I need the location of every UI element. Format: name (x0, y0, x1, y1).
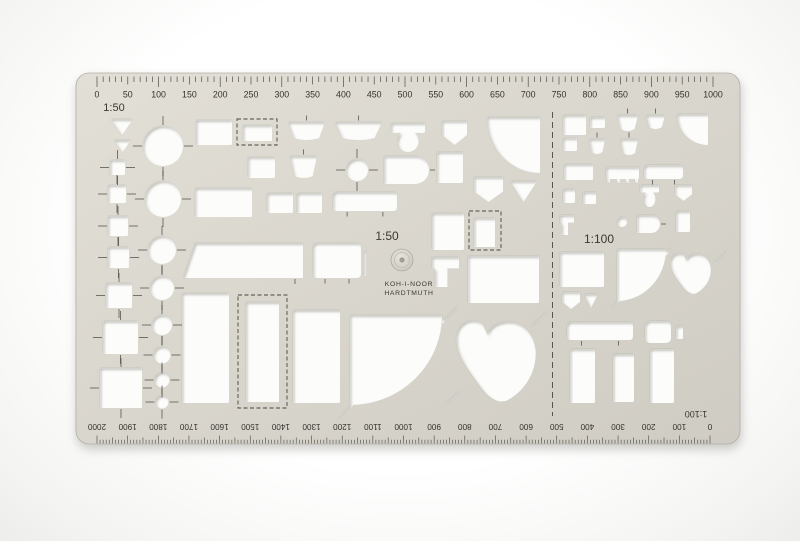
top-ruler-number: 650 (490, 90, 505, 100)
cutout-square-marker-6 (103, 321, 138, 354)
scale-label-center: 1:50 (375, 229, 399, 243)
cutout-h-bed-double (560, 252, 604, 287)
cutout-washbasin-3 (290, 156, 317, 178)
top-ruler-number: 1000 (703, 90, 723, 100)
top-ruler-number: 700 (521, 90, 536, 100)
top-ruler-number: 100 (151, 90, 166, 100)
cutout-h-sofa (567, 322, 633, 340)
cutout-square-marker-7 (100, 368, 142, 408)
bottom-ruler-number: 1100 (364, 422, 382, 431)
cutout-circle-6 (154, 347, 171, 364)
top-ruler-number: 500 (398, 90, 413, 100)
cutout-circle-1 (143, 126, 183, 166)
cutout-h-chair-tab (676, 326, 683, 339)
cutout-h-cab-4 (583, 192, 596, 204)
bottom-ruler-number: 100 (672, 422, 686, 431)
cutout-circle-2 (145, 181, 181, 217)
bottom-ruler-number: 700 (488, 422, 502, 431)
scale-label-top-left: 1:50 (103, 102, 124, 114)
cutout-desk (195, 188, 252, 217)
top-ruler-number: 400 (336, 90, 351, 100)
cutout-h-cab-3 (563, 189, 575, 203)
template-photo: 0501001502002503003504004505005506006507… (0, 0, 800, 541)
cutout-dashed-square (474, 218, 495, 247)
bottom-ruler-number: 1600 (210, 422, 229, 431)
top-ruler-number: 900 (644, 90, 659, 100)
cutout-square-marker-4 (108, 247, 129, 268)
bottom-ruler-number: 1300 (302, 422, 321, 431)
bottom-ruler-number: 800 (458, 422, 472, 431)
scale-label-bottom-flipped: 1:100 (685, 409, 708, 419)
cutout-night-table-1 (267, 193, 293, 213)
cutout-h-bed-2 (613, 354, 634, 402)
cutout-square-marker-3 (108, 216, 128, 236)
cutout-bed-single (182, 293, 229, 403)
top-ruler-number: 200 (213, 90, 228, 100)
cutout-bathtub-2 (313, 243, 361, 278)
bottom-ruler-number: 2000 (87, 422, 106, 431)
cutout-wardrobe (196, 120, 232, 145)
bottom-ruler-number: 1900 (118, 422, 137, 431)
bottom-ruler-number: 1800 (149, 422, 168, 431)
cutout-fridge (432, 213, 464, 250)
bottom-ruler-number: 900 (427, 422, 441, 431)
cutout-h-bed-1 (570, 349, 595, 403)
cutout-cabinet (248, 157, 275, 178)
bottom-ruler-number: 500 (549, 422, 563, 431)
cutout-h-tub-round (637, 215, 660, 233)
bottom-ruler-number: 1400 (271, 422, 290, 431)
top-ruler-number: 800 (582, 90, 597, 100)
top-ruler-number: 250 (244, 90, 259, 100)
brand-name: KOH-I-NOOR (385, 281, 434, 288)
rivet (391, 249, 413, 271)
cutout-bed-dashed (246, 302, 279, 402)
top-ruler-number: 150 (182, 90, 197, 100)
cutout-h-wardrobe (563, 115, 586, 135)
top-ruler-number: 600 (459, 90, 474, 100)
cutout-square-marker-1 (110, 160, 125, 175)
top-ruler-number: 0 (95, 90, 100, 100)
top-ruler-number: 850 (613, 90, 628, 100)
cutout-h-armchair (645, 321, 671, 343)
top-ruler-number: 950 (675, 90, 690, 100)
cutout-circle-7 (155, 373, 170, 388)
bottom-ruler-number: 400 (580, 422, 594, 431)
top-ruler-number: 50 (123, 90, 133, 100)
cutout-bathtub-round-end (384, 156, 429, 184)
cutout-sofa (183, 243, 303, 278)
cutout-square-marker-2 (108, 185, 126, 203)
cutout-night-table-2 (297, 193, 322, 213)
bottom-ruler-number: 200 (641, 422, 655, 431)
product-photo: 0501001502002503003504004505005506006507… (0, 0, 800, 541)
cutout-h-desk (564, 164, 593, 180)
cutout-bed-single-2 (293, 310, 340, 403)
bottom-ruler-number: 1000 (394, 422, 413, 431)
cutout-square-marker-5 (106, 283, 132, 308)
stencil-body-group: 0501001502002503003504004505005506006507… (76, 73, 740, 444)
scale-label-right: 1:100 (584, 232, 614, 246)
cutout-h-stool (617, 217, 627, 227)
brand-name-line2: HARDTMUTH (384, 290, 433, 297)
cutout-h-bathtub (644, 165, 683, 179)
cutout-circle-4 (150, 276, 174, 300)
top-ruler-number: 350 (305, 90, 320, 100)
bottom-ruler-number: 1200 (333, 422, 352, 431)
cutout-circle-3 (148, 236, 176, 264)
bottom-ruler-number: 1500 (241, 422, 260, 431)
bottom-ruler-number: 300 (611, 422, 625, 431)
bottom-ruler-number: 1700 (179, 422, 198, 431)
cutout-dashed-box (243, 125, 272, 141)
cutout-bathtub (333, 192, 397, 211)
cutout-table-large (468, 256, 539, 303)
cutout-h-bed-3 (650, 349, 674, 403)
top-ruler-number: 300 (274, 90, 289, 100)
cutout-side-table-round (346, 159, 368, 181)
top-ruler-number: 450 (367, 90, 382, 100)
cutout-h-cabinet-2 (563, 138, 577, 151)
top-ruler-number: 550 (428, 90, 443, 100)
cutout-h-door (676, 211, 690, 232)
cutout-h-cabinet (590, 117, 605, 128)
bottom-ruler-number: 0 (707, 422, 712, 431)
top-ruler-number: 750 (552, 90, 567, 100)
cutout-circle-5 (152, 315, 172, 335)
cutout-tall-cabinet (437, 152, 463, 183)
bottom-ruler-number: 600 (519, 422, 533, 431)
